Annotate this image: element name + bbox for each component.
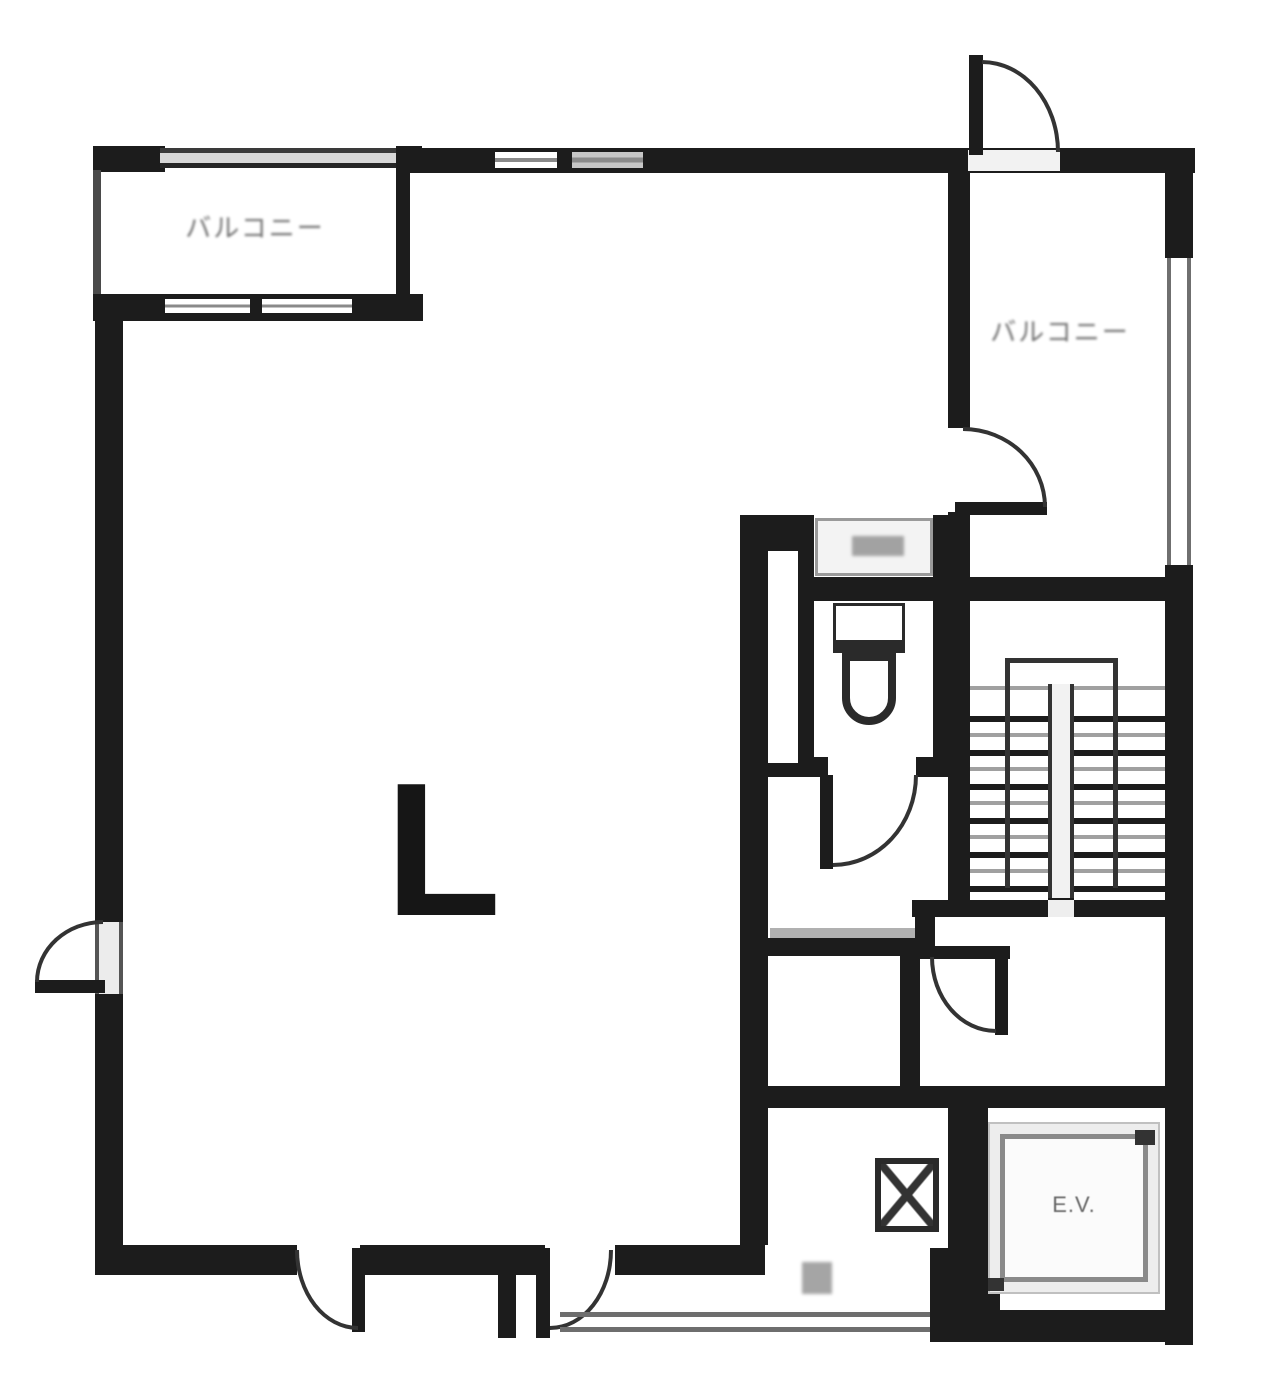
- illegible-label-smudge-porch: [802, 1262, 832, 1294]
- balcony-tl-corner-wall: [93, 146, 165, 172]
- bottom-door2-swing-arc: [550, 1250, 613, 1330]
- balcony-tl-bottom-wall: [93, 294, 423, 321]
- balcony-tl-top-railing: [160, 148, 400, 168]
- stair-center-divider: [1048, 684, 1074, 910]
- balcony-tl-left-railing: [93, 170, 101, 296]
- closet-bottom-cap: [768, 763, 814, 777]
- balcony-tl-window-2: [262, 299, 352, 313]
- illegible-label-smudge-shelf: [852, 536, 904, 556]
- small-room-right-wall: [900, 956, 920, 1086]
- toilet-right-junction-wall: [933, 515, 970, 603]
- balcony-tl-window-1: [165, 299, 250, 313]
- right-wall-lower: [1165, 565, 1193, 1345]
- right-balcony-left-wall-upper: [948, 172, 970, 428]
- right-wall-upper: [1165, 148, 1193, 258]
- left-door-swing-arc: [35, 920, 103, 982]
- left-wall-lower: [95, 994, 123, 1275]
- ev-corner-tick-bl: [988, 1278, 1004, 1291]
- porch-edge-line-1: [560, 1312, 932, 1317]
- top-wall-window-1: [495, 152, 557, 168]
- stair-left-wall: [948, 600, 970, 915]
- hall-door-leaf: [995, 950, 1008, 1035]
- hall-ev-top-wall: [740, 1086, 1192, 1108]
- hall-door-swing-arc: [930, 957, 996, 1033]
- stair-toilet-top-wall: [812, 577, 1192, 601]
- closet-right-wall: [798, 551, 814, 763]
- bottom-wall-2: [360, 1245, 545, 1275]
- vestibule-threshold: [770, 928, 920, 938]
- bottom-wall-3: [615, 1245, 765, 1275]
- ev-corner-tick-tr: [1135, 1130, 1155, 1145]
- ev-left-wall: [948, 1108, 988, 1248]
- right-balcony-label: バルコニー: [960, 312, 1160, 349]
- toilet-bottom-wall-left: [814, 757, 828, 777]
- toilet-tank-band: [833, 640, 905, 653]
- bottom-wall-1: [95, 1245, 297, 1275]
- floor-plan: バルコニー バルコニー: [0, 0, 1280, 1391]
- top-right-door-leaf: [969, 55, 983, 155]
- bottom-door2-post: [498, 1245, 516, 1338]
- right-wall-balcony-railing: [1167, 258, 1191, 565]
- ev-label: E.V.: [1000, 1192, 1148, 1218]
- closet-interior: [768, 551, 798, 763]
- porch-edge-line-2: [560, 1327, 932, 1332]
- right-balcony-door-swing-arc: [963, 427, 1047, 507]
- living-room-label: L: [385, 755, 501, 945]
- toilet-bowl: [842, 653, 896, 725]
- top-right-door-swing-arc: [982, 60, 1060, 152]
- balcony-tl-right-wall: [396, 170, 410, 296]
- pipe-space-box: [875, 1158, 939, 1232]
- closet-top-cap: [768, 515, 814, 551]
- bottom-door1-swing-arc: [295, 1250, 358, 1330]
- living-right-wall: [740, 515, 768, 1245]
- top-wall-window-2: [572, 152, 643, 168]
- balcony-tl-label: バルコニー: [150, 208, 360, 245]
- toilet-bottom-wall-right: [916, 757, 933, 777]
- stair-bottom-wall-gap: [1048, 900, 1074, 917]
- vestibule-bottom-wall: [768, 938, 935, 956]
- bottom-door2-leaf: [536, 1248, 550, 1338]
- toilet-right-wall: [933, 600, 948, 777]
- left-wall-upper: [95, 294, 123, 922]
- toilet-door-leaf: [820, 775, 833, 869]
- ev-bottom-wall: [1000, 1310, 1192, 1342]
- toilet-door-swing-arc: [833, 775, 918, 867]
